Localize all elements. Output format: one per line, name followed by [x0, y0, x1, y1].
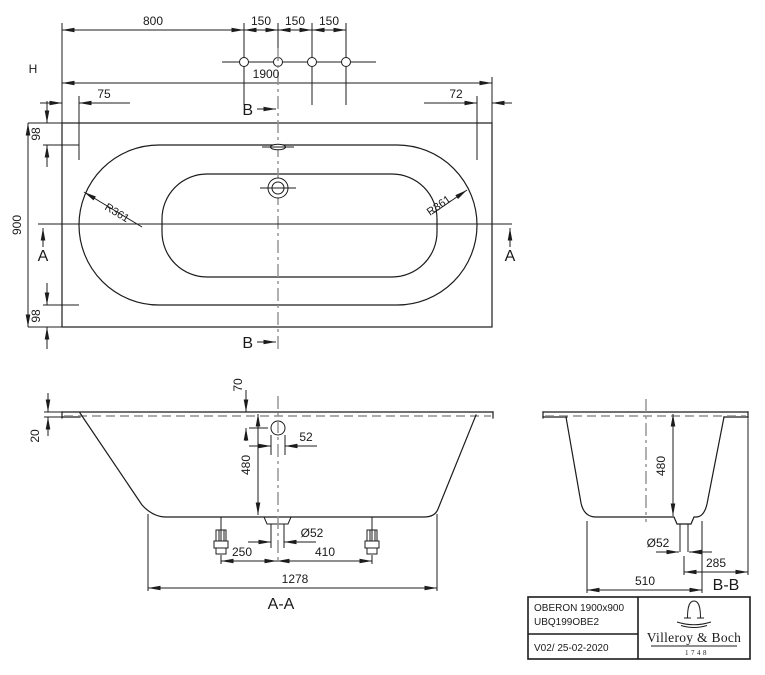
bathtub-drawing: H 800 150 150 150 1900 75 72 98 900 98 R…	[0, 0, 765, 675]
radius-right-label: R361	[425, 194, 453, 219]
logo-wave-icon	[681, 626, 707, 628]
section-bb-view: 480 Ø52 285 510 B-B	[543, 399, 748, 594]
dim-800-label: 800	[143, 14, 163, 28]
dim-1278-label: 1278	[282, 572, 309, 586]
logo-arch-icon	[688, 601, 701, 618]
logo-wave-icon	[677, 622, 711, 625]
dim-72-label: 72	[449, 87, 463, 101]
technical-drawing-page: H 800 150 150 150 1900 75 72 98 900 98 R…	[0, 0, 765, 675]
section-aa-title: A-A	[268, 596, 295, 613]
dim-410-label: 410	[315, 545, 335, 559]
section-aa-view: 70 20 52 480 Ø52 250 410 1278 A-A	[28, 378, 493, 613]
dim-52-label: 52	[299, 430, 313, 444]
dim-20-label: 20	[28, 429, 42, 443]
dim-70-label: 70	[231, 378, 245, 392]
fitting-hole	[240, 58, 249, 67]
section-marker-b-bottom: B	[242, 335, 253, 352]
dim-150-label-c: 150	[319, 14, 339, 28]
brand-name: Villeroy & Boch	[647, 630, 741, 645]
section-marker-a-right: A	[505, 248, 516, 265]
handle-height-label: H	[29, 62, 38, 76]
dim-510-label: 510	[635, 574, 655, 588]
dim-1900-label: 1900	[253, 67, 280, 81]
product-name: OBERON 1900x900	[534, 603, 624, 614]
title-block: OBERON 1900x900 UBQ199OBE2 V02/ 25-02-20…	[528, 597, 750, 659]
dim-900-label: 900	[10, 215, 24, 235]
top-view: H 800 150 150 150 1900 75 72 98 900 98 R…	[10, 14, 516, 352]
dim-150-label-a: 150	[251, 14, 271, 28]
section-bb-title: B-B	[713, 577, 740, 594]
product-code: UBQ199OBE2	[534, 617, 599, 628]
radius-left-label: R361	[102, 201, 131, 225]
dia-52-label-bb: Ø52	[647, 536, 670, 550]
dim-480-label-bb: 480	[654, 456, 668, 476]
drawing-version: V02/ 25-02-2020	[534, 643, 609, 654]
dia-52-label-aa: Ø52	[301, 526, 324, 540]
fitting-hole	[308, 58, 317, 67]
brand-year: 1748	[685, 649, 709, 657]
section-marker-b-top: B	[242, 102, 253, 119]
dim-98-top-label: 98	[29, 127, 43, 141]
dim-75-label: 75	[97, 87, 111, 101]
adjustable-foot-left	[214, 517, 228, 554]
section-marker-a-left: A	[38, 248, 49, 265]
adjustable-foot-right	[365, 517, 379, 554]
dim-150-label-b: 150	[285, 14, 305, 28]
villeroy-boch-logo: Villeroy & Boch 1748	[647, 601, 741, 657]
dim-250-label: 250	[232, 545, 252, 559]
dim-98-bottom-label: 98	[29, 309, 43, 323]
dim-480-label-aa: 480	[239, 455, 253, 475]
tub-profile-bb	[566, 417, 724, 524]
dim-285-label: 285	[706, 556, 726, 570]
fitting-hole	[342, 58, 351, 67]
